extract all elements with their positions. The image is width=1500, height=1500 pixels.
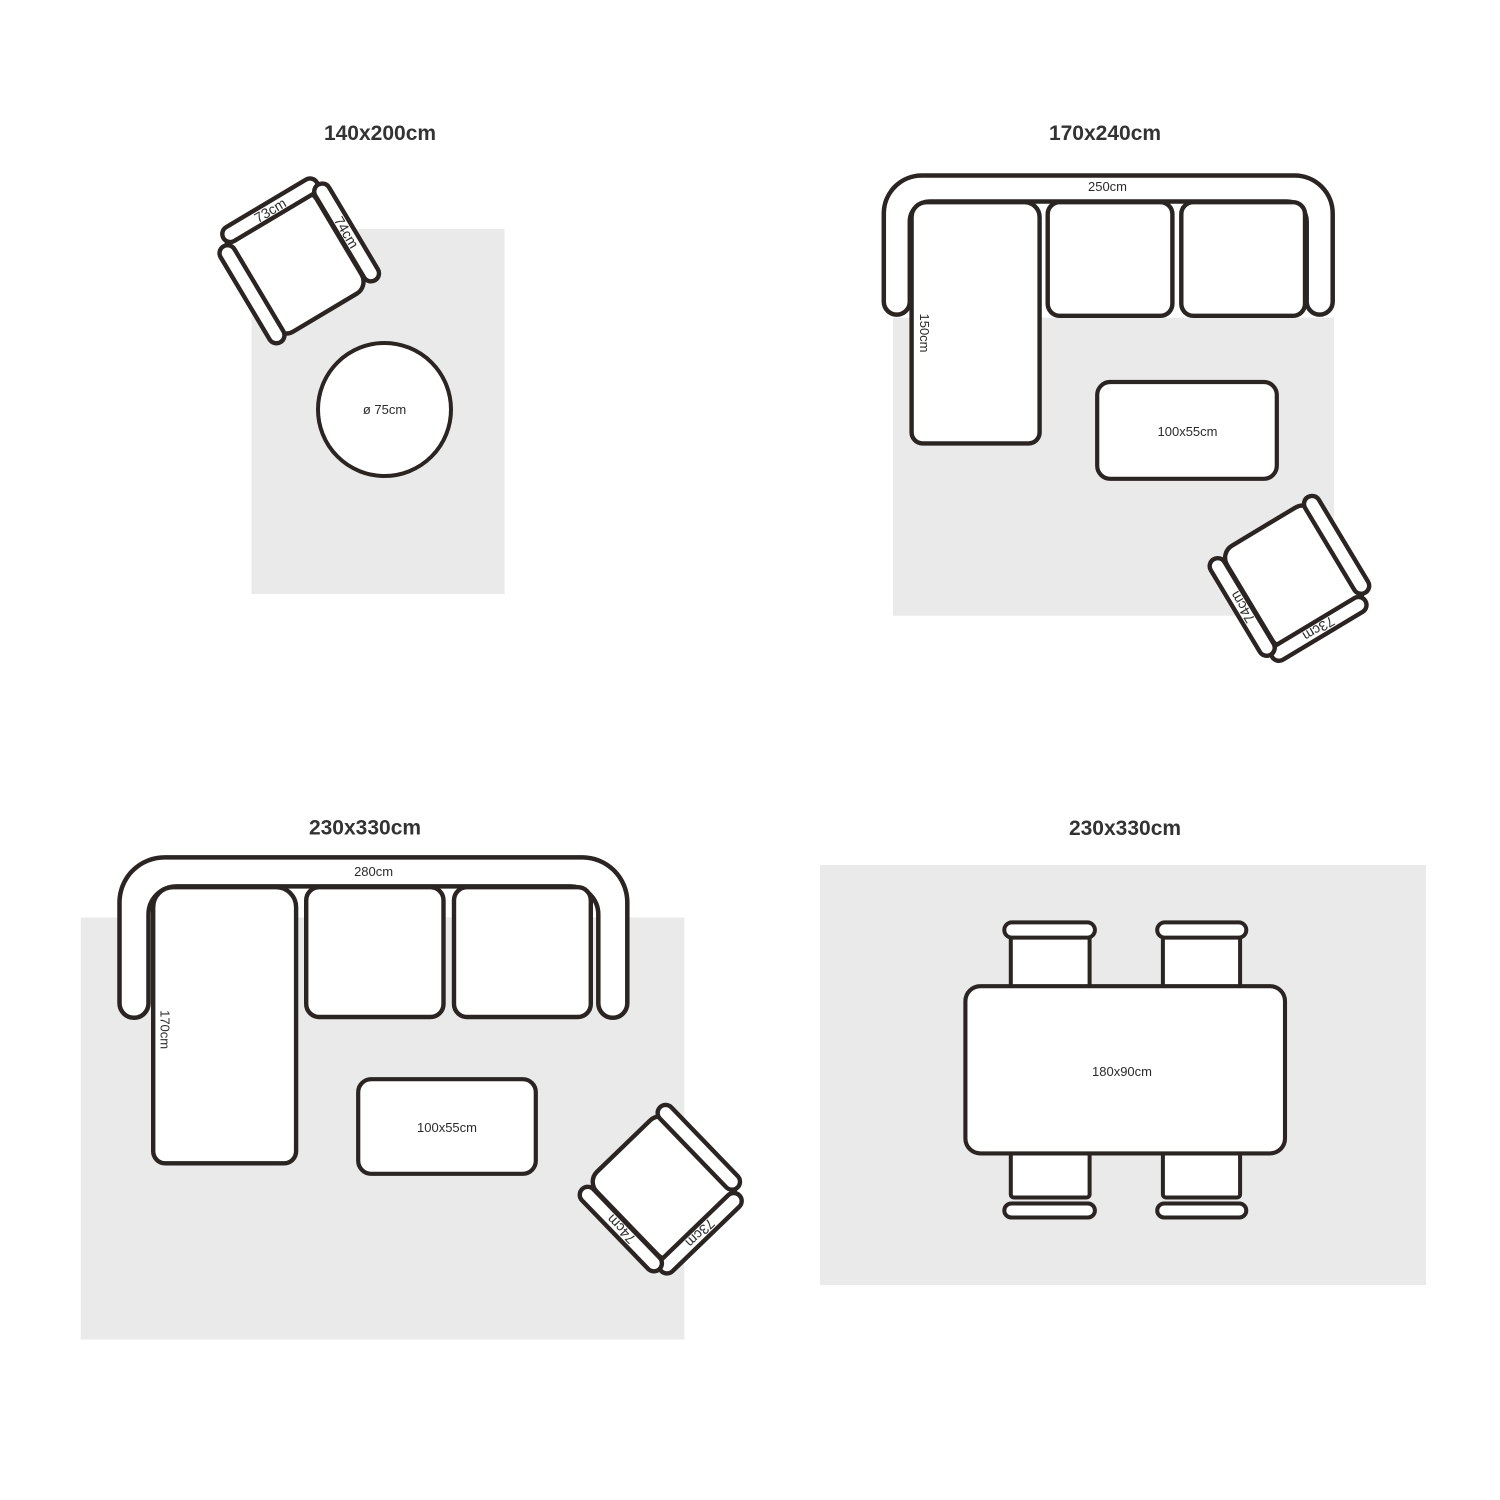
svg-text:230x330cm: 230x330cm	[1069, 817, 1181, 840]
svg-text:150cm: 150cm	[917, 313, 932, 352]
svg-text:ø 75cm: ø 75cm	[363, 402, 406, 417]
svg-text:170x240cm: 170x240cm	[1049, 122, 1161, 145]
svg-text:280cm: 280cm	[354, 864, 393, 879]
svg-text:230x330cm: 230x330cm	[309, 817, 421, 840]
svg-text:100x55cm: 100x55cm	[417, 1120, 477, 1135]
svg-text:250cm: 250cm	[1088, 179, 1127, 194]
svg-text:170cm: 170cm	[158, 1010, 173, 1049]
svg-text:100x55cm: 100x55cm	[1158, 424, 1218, 439]
svg-text:140x200cm: 140x200cm	[324, 122, 436, 145]
svg-text:180x90cm: 180x90cm	[1092, 1064, 1152, 1079]
